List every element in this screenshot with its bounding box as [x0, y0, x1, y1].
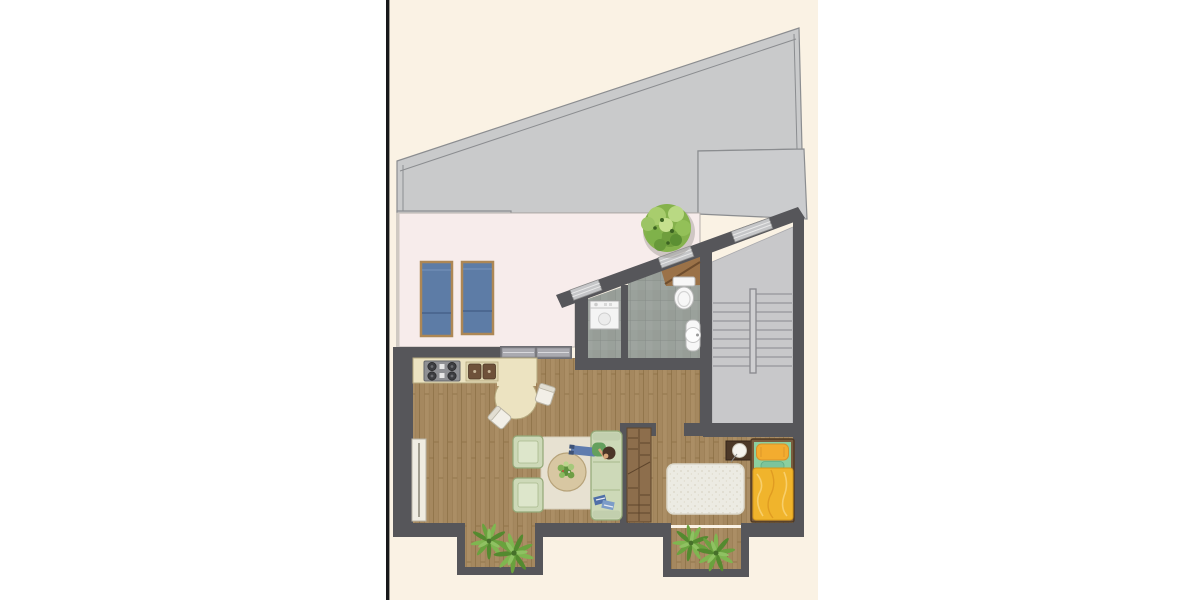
wall-stair-bottom: [703, 423, 803, 437]
wall-niche2-bottom: [663, 569, 749, 577]
sun-lounger-1: [421, 262, 452, 336]
coffee-table: [548, 453, 586, 491]
wall-laundry-left: [575, 296, 588, 370]
wall-left: [393, 347, 413, 537]
wall-bottom-1: [393, 523, 465, 537]
washbasin: [686, 320, 701, 351]
stair-stringer-rail: [750, 289, 756, 373]
wall-bath-bottom: [575, 358, 712, 370]
floor-plan-canvas: [0, 0, 1200, 600]
armchair-2: [513, 478, 543, 512]
washing-machine: [590, 301, 619, 329]
hallway-floor: [620, 367, 712, 430]
wall-bottom-2: [535, 523, 671, 537]
roof-panel-right: [698, 149, 807, 219]
wall-bedroom-top-b: [684, 423, 704, 436]
wardrobe: [627, 428, 651, 522]
kitchen-sink: [466, 362, 498, 381]
wall-stair-left: [700, 252, 712, 423]
gas-hob: [424, 361, 460, 381]
bed: [751, 439, 794, 522]
sun-lounger-2: [462, 262, 493, 334]
page-divider-line: [386, 0, 389, 600]
nightstand: [726, 441, 753, 462]
toilet: [673, 277, 695, 309]
counter-table-join: [497, 372, 536, 386]
sliding-glass-door: [500, 346, 572, 359]
table-lamp: [733, 444, 747, 458]
wall-laundry-bath-divider: [621, 285, 628, 365]
armchair-1: [513, 436, 543, 468]
bedroom-rug: [667, 464, 744, 514]
terrace-edge: [396, 213, 400, 347]
wall-niche1-bottom: [457, 567, 543, 575]
